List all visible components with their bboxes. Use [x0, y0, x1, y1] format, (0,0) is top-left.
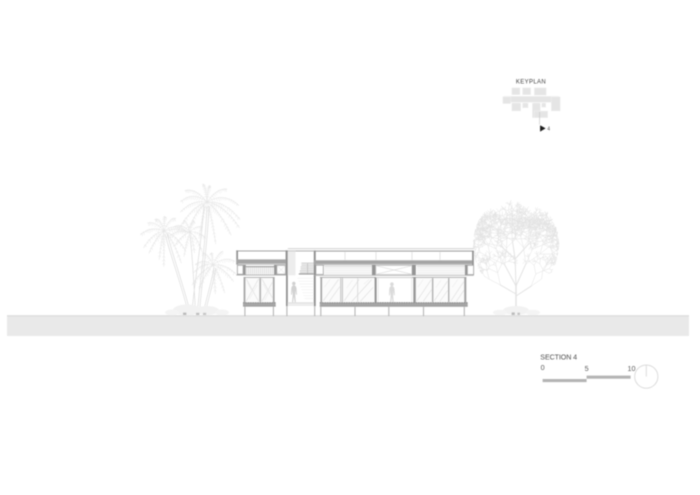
- svg-text:KEYPLAN: KEYPLAN: [516, 80, 546, 86]
- svg-text:10: 10: [628, 364, 636, 373]
- svg-text:SECTION 4: SECTION 4: [540, 353, 577, 361]
- svg-text:0: 0: [541, 363, 545, 372]
- svg-text:5: 5: [585, 364, 589, 373]
- svg-text:4: 4: [547, 127, 550, 133]
